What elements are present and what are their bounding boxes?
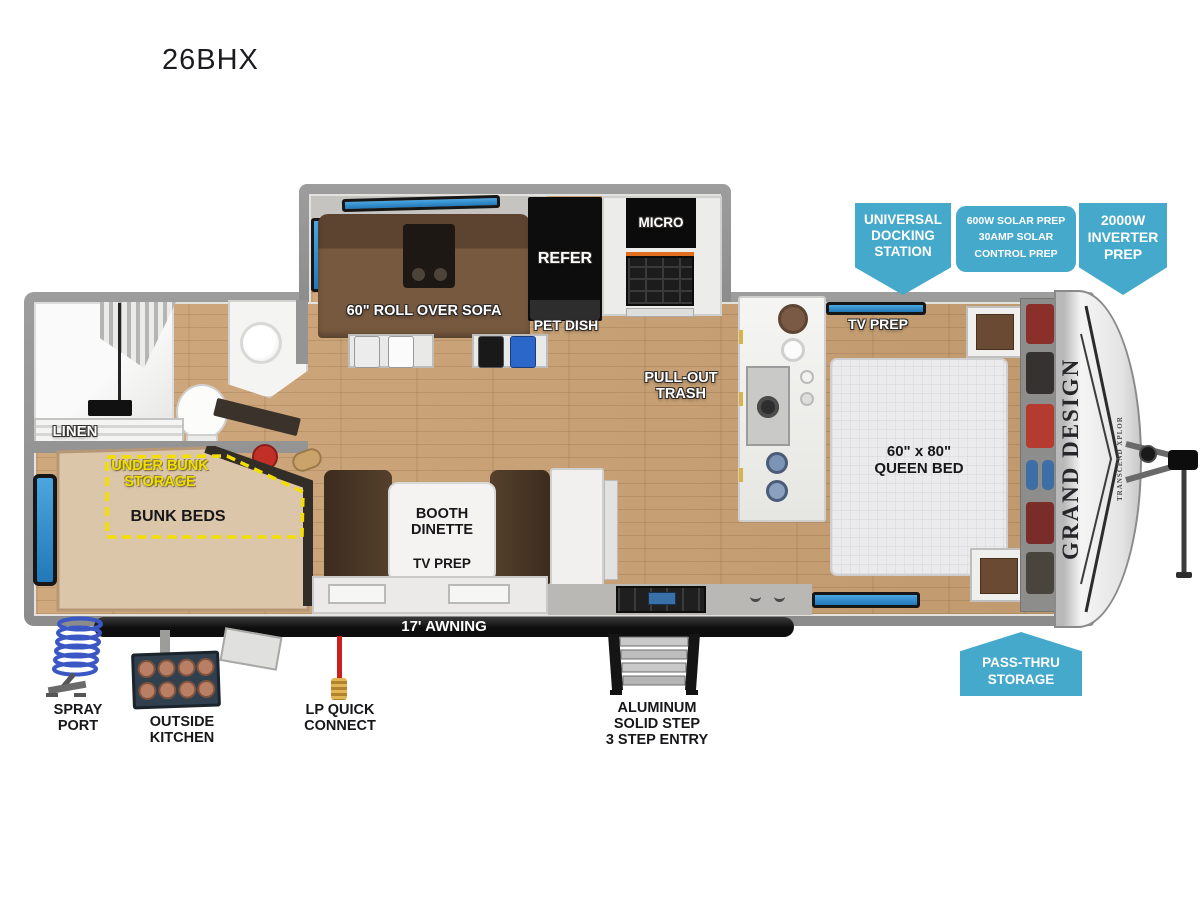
bunk-window (33, 474, 57, 586)
jersey-decoration (478, 336, 504, 368)
cabinet-handle (739, 468, 743, 482)
solar-prep-text: 600W SOLAR PREP 30AMP SOLAR CONTROL PREP (956, 206, 1076, 262)
micro-label: MICRO (639, 215, 684, 230)
page-title: 26BHX (162, 44, 259, 77)
bedroom-tv-mount (826, 302, 926, 315)
wardrobe-clothes (1026, 552, 1054, 594)
microwave: MICRO (626, 198, 696, 248)
lp-quick-connect-line (337, 636, 342, 680)
sink-bowl (766, 480, 788, 502)
brand-logo-text: GRAND DESIGN (1058, 304, 1088, 614)
cup-holder (412, 268, 425, 281)
under-bunk-storage-label: UNDER BUNK STORAGE (98, 458, 222, 490)
counter-bowl (778, 304, 808, 334)
spray-port-label: SPRAY PORT (38, 702, 118, 734)
bedroom-tv-prep-label: TV PREP (836, 317, 920, 333)
wardrobe-shoes (1026, 460, 1038, 490)
sofa-label: 60" ROLL OVER SOFA (322, 303, 526, 319)
floorplan-page: 26BHX LINEN UNDER BUNK STORAGE BUNK BEDS… (0, 0, 1200, 900)
nightstand-top-surface (980, 558, 1018, 594)
sink-bowl (766, 452, 788, 474)
spray-port-icon (40, 616, 112, 704)
jersey-decoration (510, 336, 536, 368)
step-entry-label: ALUMINUM SOLID STEP 3 STEP ENTRY (592, 700, 722, 749)
lp-quick-connect-label: LP QUICK CONNECT (294, 702, 386, 734)
lp-quick-connect-fitting (331, 678, 347, 700)
counter-drawer (448, 584, 510, 604)
queen-bed-label: 60" x 80" QUEEN BED (838, 444, 1000, 478)
bath-sink (240, 322, 282, 364)
sink-drain (757, 396, 779, 418)
cooktop (626, 256, 694, 306)
pass-thru-storage-badge: PASS-THRU STORAGE (960, 632, 1082, 696)
counter-drawer (328, 584, 386, 604)
bath-wall (296, 300, 308, 364)
cup-holder (434, 268, 447, 281)
cabinet-handle (739, 330, 743, 344)
shower-base (88, 400, 132, 416)
pull-out-trash-label: PULL-OUT TRASH (634, 370, 728, 402)
step-well-tread (648, 592, 676, 605)
griddle-burners (131, 650, 221, 709)
jersey-decoration (354, 336, 380, 368)
booth-dinette-label: BOOTH DINETTE (390, 506, 494, 538)
universal-docking-station-text: UNIVERSAL DOCKING STATION (855, 203, 951, 261)
inverter-prep-badge: 2000W INVERTER PREP (1079, 203, 1167, 295)
outside-kitchen-label: OUTSIDE KITCHEN (126, 714, 238, 746)
wardrobe-clothes (1026, 352, 1054, 394)
sofa-console (403, 224, 455, 288)
bunk-beds-label: BUNK BEDS (108, 508, 248, 526)
awning-label: 17' AWNING (401, 619, 487, 636)
wardrobe-clothes (1026, 502, 1054, 544)
cabinet-handle (739, 392, 743, 406)
dinette-tv-prep-label: TV PREP (390, 556, 494, 571)
universal-docking-station-badge: UNIVERSAL DOCKING STATION (855, 203, 951, 295)
dinette-bench (490, 470, 550, 584)
pass-thru-storage-text: PASS-THRU STORAGE (960, 632, 1082, 689)
entry-steps-icon (606, 632, 702, 698)
solar-prep-badge: 600W SOLAR PREP 30AMP SOLAR CONTROL PREP (956, 206, 1076, 272)
wardrobe-clothes (1026, 404, 1054, 448)
hitch-tongue (1124, 418, 1200, 596)
wardrobe-clothes (1026, 304, 1054, 344)
inverter-prep-text: 2000W INVERTER PREP (1079, 203, 1167, 262)
shower-pole (118, 303, 121, 407)
jersey-decoration (388, 336, 414, 368)
wardrobe-shoes (1042, 460, 1054, 490)
counter-knob (800, 392, 814, 406)
pantry-side-cabinet (604, 480, 618, 580)
pet-dish-label: PET DISH (526, 318, 606, 334)
counter-knob (800, 370, 814, 384)
dinette-bench (324, 470, 392, 584)
counter-bowl (781, 338, 805, 362)
stove-drawer (626, 308, 694, 317)
refer-label: REFER (538, 250, 592, 268)
linen-label: LINEN (38, 424, 112, 441)
bedroom-window (812, 592, 920, 608)
nightstand-top-surface (976, 314, 1014, 350)
